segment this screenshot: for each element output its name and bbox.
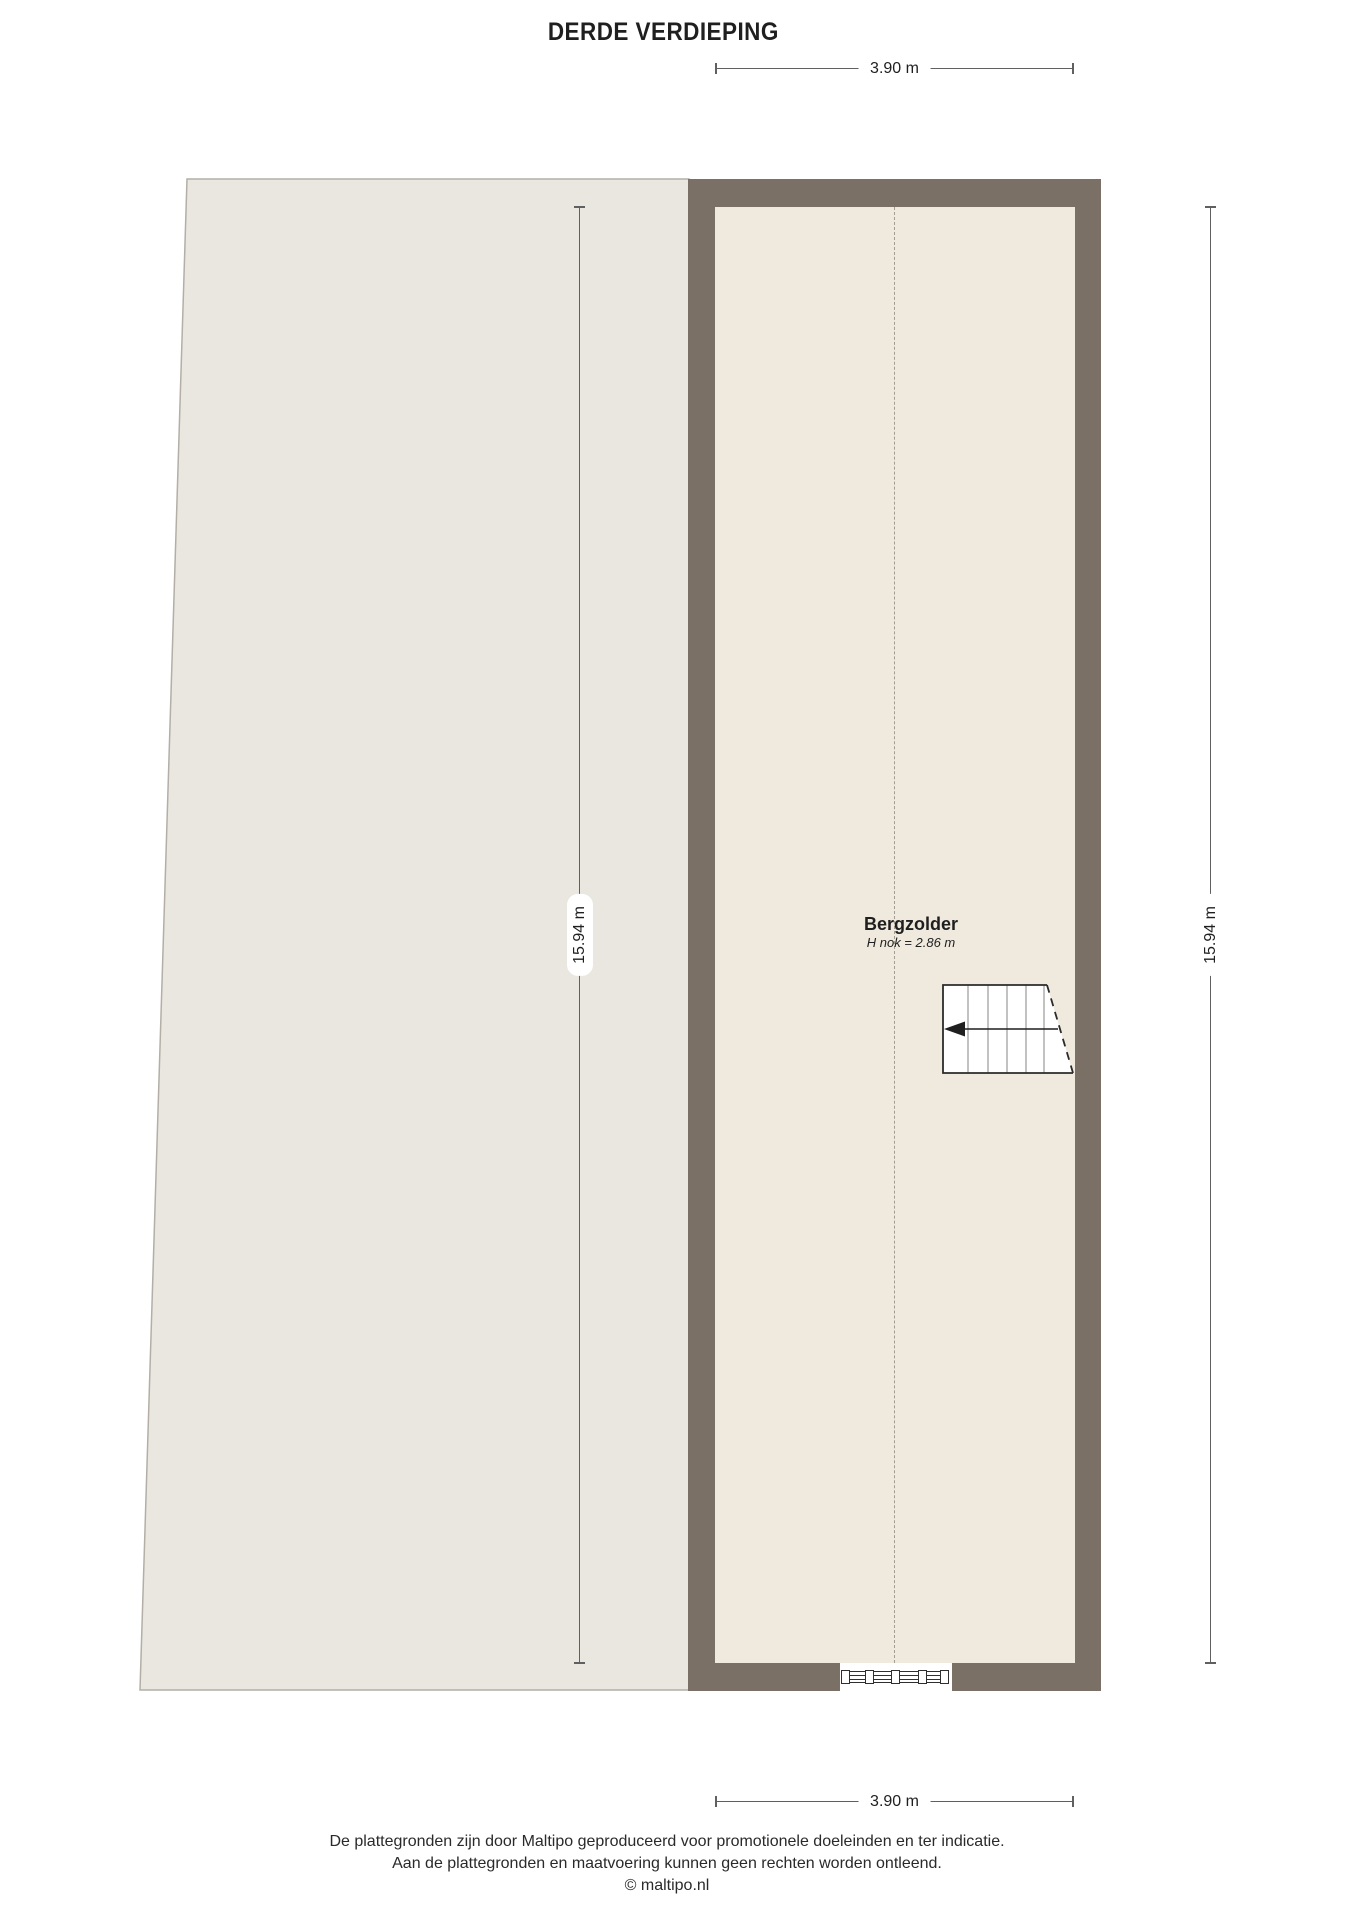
right-height-dimension-label: 15.94 m — [1198, 894, 1224, 976]
footer-disclaimer: De plattegronden zijn door Maltipo gepro… — [0, 1831, 1334, 1897]
dimension-tick — [1072, 63, 1074, 74]
dimension-tick — [1205, 1662, 1216, 1664]
window-post — [841, 1670, 850, 1684]
bottom-width-dimension: 3.90 m — [716, 1791, 1073, 1812]
floor-plan-page: DERDE VERDIEPING 3.90 m Bergzolder H nok… — [0, 0, 1358, 1920]
adjacent-roof-area — [139, 178, 690, 1692]
staircase — [942, 984, 1074, 1074]
dimension-tick — [715, 63, 717, 74]
room-label: Bergzolder H nok = 2.86 m — [811, 914, 1011, 950]
dimension-tick — [1072, 1796, 1074, 1807]
dimension-tick — [574, 206, 585, 208]
page-title: DERDE VERDIEPING — [0, 18, 1326, 47]
window-post — [865, 1670, 874, 1684]
top-width-dimension-label: 3.90 m — [858, 60, 931, 78]
window-post — [891, 1670, 900, 1684]
window-post — [940, 1670, 949, 1684]
adjacent-roof-area-shape — [140, 179, 689, 1690]
footer-line-1: De plattegronden zijn door Maltipo gepro… — [0, 1831, 1334, 1853]
room-height-note: H nok = 2.86 m — [811, 935, 1011, 950]
right-height-dimension: 15.94 m — [1200, 207, 1221, 1663]
footer-copyright: © maltipo.nl — [0, 1875, 1334, 1897]
dimension-tick — [574, 1662, 585, 1664]
footer-line-2: Aan de plattegronden en maatvoering kunn… — [0, 1853, 1334, 1875]
page-title-text: DERDE VERDIEPING — [547, 18, 778, 47]
left-height-dimension-label: 15.94 m — [567, 894, 593, 976]
window-post — [918, 1670, 927, 1684]
left-height-dimension: 15.94 m — [569, 207, 590, 1663]
bottom-width-dimension-label: 3.90 m — [858, 1793, 931, 1811]
top-width-dimension: 3.90 m — [716, 58, 1073, 79]
room-name: Bergzolder — [811, 914, 1011, 934]
dimension-tick — [1205, 206, 1216, 208]
window-icon — [841, 1671, 949, 1683]
dimension-tick — [715, 1796, 717, 1807]
